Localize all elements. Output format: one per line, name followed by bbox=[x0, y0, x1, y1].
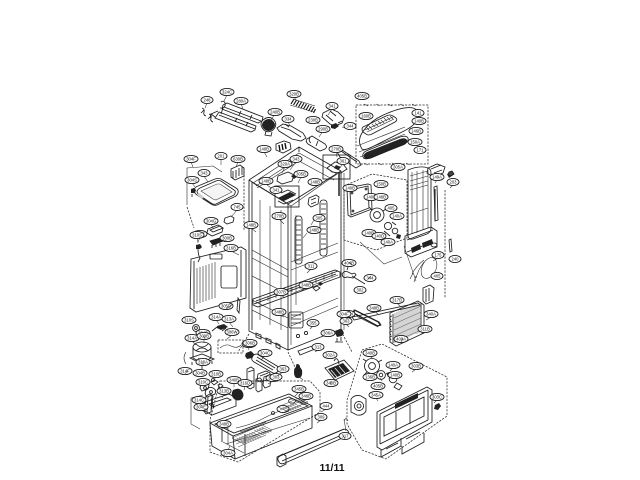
svg-text:307B: 307B bbox=[276, 290, 286, 295]
svg-text:270B: 270B bbox=[274, 214, 284, 219]
svg-text:302A: 302A bbox=[325, 353, 335, 358]
svg-text:310S: 310S bbox=[192, 233, 202, 238]
svg-text:314A: 314A bbox=[211, 315, 221, 320]
svg-text:310B: 310B bbox=[211, 372, 221, 377]
svg-text:306B: 306B bbox=[245, 341, 255, 346]
svg-text:305B: 305B bbox=[296, 172, 306, 177]
svg-text:304F: 304F bbox=[339, 312, 349, 317]
svg-text:345B: 345B bbox=[294, 387, 304, 392]
svg-text:340A: 340A bbox=[426, 312, 436, 317]
svg-text:345A: 345A bbox=[371, 393, 381, 398]
svg-text:304S: 304S bbox=[187, 178, 197, 183]
svg-text:175: 175 bbox=[435, 253, 443, 258]
svg-text:140A: 140A bbox=[383, 240, 393, 245]
svg-text:305: 305 bbox=[316, 216, 324, 221]
svg-text:313B: 313B bbox=[219, 389, 229, 394]
svg-text:340B: 340B bbox=[229, 378, 239, 383]
svg-text:140B: 140B bbox=[414, 119, 424, 124]
svg-text:305D: 305D bbox=[221, 304, 231, 309]
svg-text:341: 341 bbox=[329, 104, 337, 109]
svg-text:320A: 320A bbox=[280, 162, 290, 167]
svg-text:314A: 314A bbox=[187, 336, 197, 341]
svg-text:344: 344 bbox=[347, 124, 355, 129]
svg-text:313: 313 bbox=[315, 345, 323, 350]
svg-text:343: 343 bbox=[293, 157, 301, 162]
svg-text:140B: 140B bbox=[345, 186, 355, 191]
svg-text:305A: 305A bbox=[393, 165, 403, 170]
svg-text:404B: 404B bbox=[344, 261, 354, 266]
svg-text:311: 311 bbox=[308, 264, 315, 269]
svg-text:409A: 409A bbox=[396, 337, 406, 342]
svg-text:306A: 306A bbox=[323, 331, 333, 336]
svg-text:348B: 348B bbox=[369, 306, 379, 311]
svg-text:311B: 311B bbox=[420, 327, 430, 332]
svg-text:304F: 304F bbox=[186, 157, 196, 162]
svg-text:341: 341 bbox=[273, 188, 281, 193]
svg-text:148B: 148B bbox=[259, 147, 269, 152]
svg-text:745: 745 bbox=[234, 205, 242, 210]
svg-text:240B: 240B bbox=[270, 110, 280, 115]
svg-text:160B: 160B bbox=[361, 114, 371, 119]
svg-text:405: 405 bbox=[388, 206, 396, 211]
svg-text:343: 343 bbox=[201, 171, 209, 176]
svg-text:303B: 303B bbox=[411, 364, 421, 369]
svg-text:334: 334 bbox=[285, 117, 293, 122]
svg-text:317B: 317B bbox=[392, 298, 402, 303]
svg-text:310S: 310S bbox=[184, 318, 194, 323]
svg-text:304C: 304C bbox=[260, 351, 270, 356]
svg-text:230B: 230B bbox=[308, 118, 318, 123]
svg-text:363: 363 bbox=[343, 319, 351, 324]
svg-text:146B: 146B bbox=[411, 129, 421, 134]
svg-text:148B: 148B bbox=[261, 179, 271, 184]
svg-text:405B: 405B bbox=[373, 384, 383, 389]
svg-text:314F: 314F bbox=[180, 369, 190, 374]
svg-text:320B: 320B bbox=[289, 92, 299, 97]
svg-text:150B: 150B bbox=[376, 182, 386, 187]
svg-text:201: 201 bbox=[218, 154, 226, 159]
svg-text:303: 303 bbox=[273, 375, 281, 380]
svg-text:148B: 148B bbox=[246, 223, 256, 228]
svg-text:304G: 304G bbox=[206, 219, 216, 224]
svg-text:203: 203 bbox=[450, 180, 458, 185]
svg-text:171: 171 bbox=[417, 148, 425, 153]
svg-text:302: 302 bbox=[357, 288, 365, 293]
svg-text:630B: 630B bbox=[233, 157, 243, 162]
svg-text:141: 141 bbox=[415, 111, 423, 116]
svg-text:314C: 314C bbox=[194, 398, 204, 403]
svg-text:344: 344 bbox=[367, 276, 375, 281]
svg-text:310C: 310C bbox=[198, 380, 208, 385]
svg-text:140D: 140D bbox=[374, 234, 384, 239]
svg-text:11/11: 11/11 bbox=[319, 462, 344, 474]
svg-text:150A: 150A bbox=[410, 140, 420, 145]
svg-text:317: 317 bbox=[342, 434, 350, 439]
svg-text:348B: 348B bbox=[274, 310, 284, 315]
svg-text:280A: 280A bbox=[236, 99, 246, 104]
svg-text:444: 444 bbox=[323, 404, 331, 409]
svg-text:140B: 140B bbox=[390, 373, 400, 378]
svg-text:136B: 136B bbox=[365, 375, 375, 380]
svg-text:300B: 300B bbox=[222, 236, 232, 241]
svg-text:316B: 316B bbox=[226, 246, 236, 251]
svg-text:140A: 140A bbox=[388, 363, 398, 368]
svg-text:148B: 148B bbox=[309, 228, 319, 233]
svg-text:240: 240 bbox=[452, 257, 460, 262]
svg-text:248: 248 bbox=[204, 98, 212, 103]
svg-text:303C: 303C bbox=[432, 395, 442, 400]
svg-text:290B: 290B bbox=[318, 127, 328, 132]
svg-text:149A: 149A bbox=[432, 175, 442, 180]
svg-text:306W: 306W bbox=[227, 330, 238, 335]
svg-text:316D: 316D bbox=[240, 381, 250, 386]
svg-text:405B: 405B bbox=[357, 94, 367, 99]
svg-text:324C: 324C bbox=[222, 90, 232, 95]
svg-text:348B: 348B bbox=[301, 394, 311, 399]
svg-text:148B: 148B bbox=[310, 180, 320, 185]
svg-text:355: 355 bbox=[310, 321, 318, 326]
svg-text:304B: 304B bbox=[195, 371, 205, 376]
svg-text:304A: 304A bbox=[223, 451, 233, 456]
svg-text:361: 361 bbox=[340, 159, 348, 164]
svg-text:348B: 348B bbox=[219, 422, 229, 427]
svg-text:405: 405 bbox=[434, 274, 442, 279]
svg-text:140A: 140A bbox=[392, 214, 402, 219]
svg-text:313A: 313A bbox=[224, 317, 234, 322]
svg-text:148B: 148B bbox=[376, 195, 386, 200]
svg-text:309: 309 bbox=[318, 415, 326, 420]
svg-text:348B: 348B bbox=[301, 283, 311, 288]
svg-text:270B: 270B bbox=[331, 147, 341, 152]
svg-text:363: 363 bbox=[280, 367, 288, 372]
svg-text:340B: 340B bbox=[365, 351, 375, 356]
